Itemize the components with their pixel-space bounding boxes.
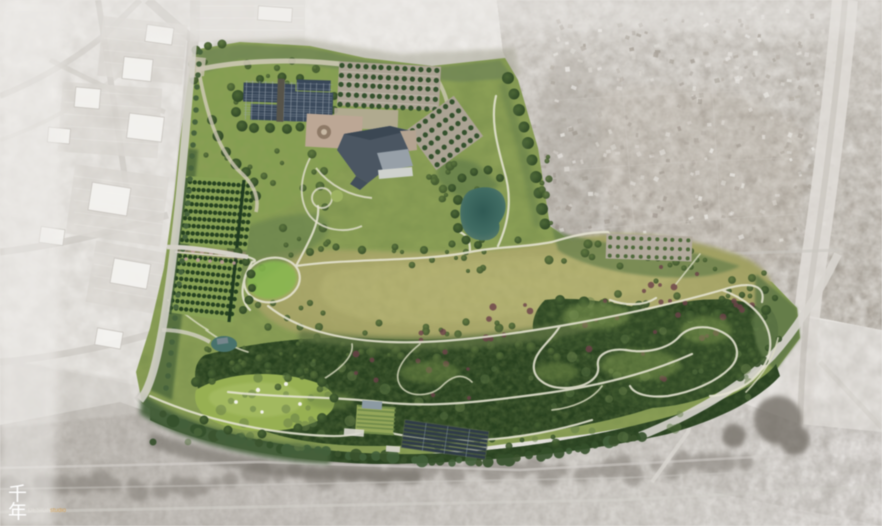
svg-text:studio: studio: [50, 508, 67, 514]
svg-text:年: 年: [8, 501, 27, 523]
svg-text:DESIGN: DESIGN: [28, 508, 51, 514]
